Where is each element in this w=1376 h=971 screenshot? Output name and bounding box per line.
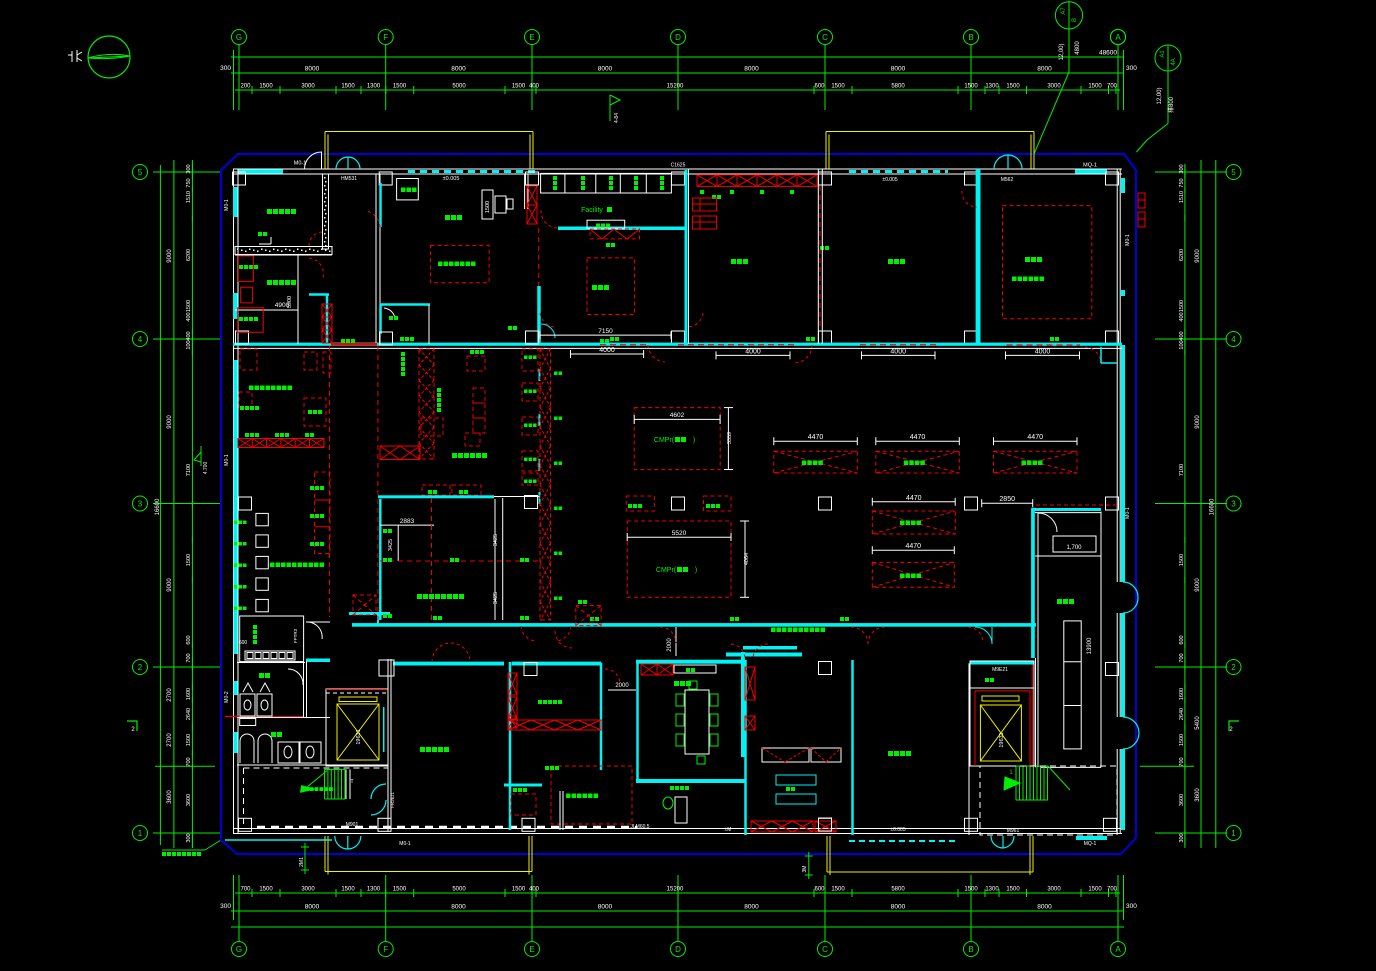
svg-text:8000: 8000 [305, 904, 320, 911]
svg-text:8000: 8000 [305, 66, 320, 73]
svg-text:4800: 4800 [1075, 41, 1081, 55]
svg-text:300: 300 [186, 164, 192, 173]
svg-text:600: 600 [814, 887, 825, 893]
svg-text:5520: 5520 [672, 530, 687, 537]
svg-text:B: B [1072, 18, 1078, 22]
svg-text:700: 700 [186, 653, 192, 662]
svg-text:2000: 2000 [667, 638, 673, 652]
svg-text:1300: 1300 [985, 84, 999, 90]
svg-text:D: D [675, 945, 681, 954]
svg-text:M0-1: M0-1 [1125, 507, 1131, 519]
svg-text:1600: 1600 [186, 688, 192, 700]
svg-text:3: 3 [138, 499, 143, 508]
svg-text:C1625: C1625 [671, 163, 686, 169]
svg-text:A: A [1115, 945, 1121, 954]
svg-text:4.700: 4.700 [203, 462, 209, 475]
svg-text:15200: 15200 [667, 84, 684, 90]
svg-text:3425: 3425 [493, 534, 499, 546]
svg-text:7150: 7150 [598, 328, 613, 335]
svg-text:5400: 5400 [1195, 716, 1201, 730]
svg-text:M961: M961 [1007, 828, 1020, 834]
svg-text:M0-1: M0-1 [399, 841, 411, 847]
svg-text:1500: 1500 [1006, 84, 1020, 90]
svg-text:4000: 4000 [745, 348, 761, 355]
svg-text:1500: 1500 [1088, 84, 1102, 90]
svg-text:T: T [350, 779, 353, 785]
svg-text:9000: 9000 [167, 415, 173, 429]
svg-text:4: 4 [1231, 335, 1236, 344]
svg-text:1500: 1500 [186, 554, 192, 566]
svg-text:F: F [383, 945, 388, 954]
svg-text:5000: 5000 [452, 887, 466, 893]
svg-text:1500: 1500 [341, 84, 355, 90]
svg-text:4470: 4470 [906, 543, 922, 550]
svg-text:1500: 1500 [964, 84, 978, 90]
svg-text:M0-1: M0-1 [294, 161, 307, 167]
svg-text:1510: 1510 [186, 191, 192, 203]
svg-text:100: 100 [1179, 340, 1185, 349]
svg-text:300: 300 [220, 65, 231, 72]
svg-text:2700: 2700 [167, 733, 173, 747]
svg-text:19631: 19631 [356, 729, 362, 744]
svg-text:1500: 1500 [512, 887, 526, 893]
svg-text:4470: 4470 [808, 434, 824, 441]
svg-text:3: 3 [1231, 499, 1236, 508]
svg-text:7100: 7100 [1179, 464, 1185, 476]
svg-text:8000: 8000 [598, 904, 613, 911]
svg-text:±M: ±M [725, 827, 732, 833]
svg-text:1500: 1500 [259, 84, 273, 90]
svg-text:±0.005: ±0.005 [890, 827, 905, 833]
svg-text:3425: 3425 [493, 592, 499, 604]
svg-text:3M: 3M [802, 866, 808, 873]
svg-text:FR26J1: FR26J1 [390, 792, 395, 808]
svg-text:M0-2: M0-2 [224, 691, 230, 703]
svg-text:1300: 1300 [367, 84, 381, 90]
svg-text:C: C [822, 945, 828, 954]
svg-text:5900: 5900 [287, 296, 293, 308]
svg-text:4000: 4000 [1035, 348, 1051, 355]
svg-text:G: G [236, 33, 242, 42]
svg-text:13900: 13900 [1087, 637, 1093, 654]
svg-text:3000: 3000 [1047, 887, 1061, 893]
svg-text:2: 2 [138, 663, 143, 672]
svg-text:3600: 3600 [1195, 788, 1201, 802]
svg-text:4064: 4064 [744, 553, 750, 565]
svg-text:1500: 1500 [831, 887, 845, 893]
svg-text:B: B [968, 33, 973, 42]
svg-text:1500: 1500 [964, 887, 978, 893]
svg-text:5: 5 [138, 168, 143, 177]
svg-text:48600: 48600 [1099, 50, 1117, 57]
svg-text:CMPr(: CMPr( [654, 437, 675, 444]
svg-text:1600: 1600 [1179, 688, 1185, 700]
svg-text:700: 700 [1179, 757, 1185, 766]
svg-text:): ) [695, 567, 697, 574]
svg-text:CMPr(: CMPr( [656, 567, 677, 574]
svg-text:1500: 1500 [341, 887, 355, 893]
svg-text:JLM60.5: JLM60.5 [630, 824, 649, 830]
svg-text:9000: 9000 [167, 249, 173, 263]
svg-text:9000: 9000 [1195, 578, 1201, 592]
svg-text:1500: 1500 [512, 84, 526, 90]
svg-text:B: B [968, 945, 973, 954]
svg-text:400: 400 [529, 84, 540, 90]
svg-text:G: G [236, 945, 242, 954]
svg-text:E: E [529, 945, 534, 954]
svg-text:5: 5 [1231, 168, 1236, 177]
svg-text:1500: 1500 [259, 887, 273, 893]
svg-text:12,00): 12,00) [1157, 87, 1163, 104]
svg-text:300: 300 [220, 903, 231, 910]
svg-text:D: D [675, 33, 681, 42]
svg-text:M9E21: M9E21 [992, 667, 1008, 673]
svg-text:300: 300 [1126, 65, 1137, 72]
svg-text:M0-1: M0-1 [1125, 234, 1131, 246]
svg-text:2M1: 2M1 [299, 857, 305, 867]
svg-text:8000: 8000 [1037, 66, 1052, 73]
svg-text:8000: 8000 [891, 904, 906, 911]
svg-text:3359: 3359 [727, 432, 733, 444]
svg-text:300: 300 [1179, 164, 1185, 173]
svg-text:750: 750 [186, 178, 192, 187]
svg-text:4470: 4470 [1027, 434, 1043, 441]
svg-text:15200: 15200 [667, 887, 684, 893]
svg-text:700: 700 [240, 887, 251, 893]
svg-text:4000: 4000 [890, 348, 906, 355]
svg-text:1500: 1500 [186, 300, 192, 312]
svg-text:2640: 2640 [186, 708, 192, 720]
svg-text:±0.005: ±0.005 [443, 176, 460, 182]
svg-text:600: 600 [186, 635, 192, 644]
svg-text:1500: 1500 [186, 734, 192, 746]
svg-text:5800: 5800 [891, 84, 905, 90]
svg-text:1500: 1500 [1179, 734, 1185, 746]
svg-text:M901: M901 [346, 822, 359, 828]
svg-text:1: 1 [1231, 829, 1236, 838]
svg-text:F: F [383, 33, 388, 42]
svg-text:200: 200 [240, 84, 251, 90]
svg-text:400: 400 [186, 312, 192, 321]
svg-text:8000: 8000 [598, 66, 613, 73]
svg-text:3000: 3000 [301, 84, 315, 90]
svg-text:1500: 1500 [393, 84, 407, 90]
svg-text:700: 700 [186, 757, 192, 766]
svg-text:600: 600 [239, 640, 248, 646]
svg-text:8000: 8000 [744, 66, 759, 73]
svg-text:A7: A7 [1061, 7, 1067, 15]
svg-text:1500: 1500 [1006, 887, 1020, 893]
svg-text:): ) [693, 437, 695, 444]
svg-text:400: 400 [1179, 312, 1185, 321]
svg-text:M0-1: M0-1 [224, 454, 230, 466]
svg-text:700: 700 [1179, 653, 1185, 662]
svg-text:1300: 1300 [985, 887, 999, 893]
svg-text:3000: 3000 [301, 887, 315, 893]
svg-text:19631: 19631 [999, 732, 1005, 747]
svg-text:2: 2 [1231, 663, 1236, 672]
svg-text:700: 700 [1107, 887, 1118, 893]
svg-text:4A: 4A [1171, 58, 1177, 65]
svg-text:600: 600 [814, 84, 825, 90]
svg-text:±0.005: ±0.005 [882, 177, 897, 183]
svg-text:6200: 6200 [1179, 249, 1185, 261]
svg-text:HM531: HM531 [341, 176, 357, 182]
svg-text:6200: 6200 [186, 249, 192, 261]
svg-text:400: 400 [186, 331, 192, 340]
svg-text:2850: 2850 [999, 496, 1015, 503]
svg-text:3000: 3000 [1047, 84, 1061, 90]
svg-text:8000: 8000 [451, 66, 466, 73]
svg-text:9000: 9000 [1195, 249, 1201, 263]
svg-text:排800: 排800 [1167, 96, 1175, 113]
svg-text:2700: 2700 [167, 688, 173, 702]
svg-text:4-84: 4-84 [614, 113, 620, 123]
svg-text:3600: 3600 [1179, 794, 1185, 806]
svg-text:100: 100 [186, 340, 192, 349]
svg-text:5800: 5800 [891, 887, 905, 893]
svg-text:1510: 1510 [1179, 191, 1185, 203]
svg-text:2883: 2883 [400, 518, 415, 525]
svg-text:Facility: Facility [581, 207, 603, 214]
svg-text:1500: 1500 [1179, 300, 1185, 312]
svg-text:8000: 8000 [891, 66, 906, 73]
svg-text:300: 300 [1179, 833, 1185, 842]
svg-text:FPTR3: FPTR3 [293, 628, 298, 643]
svg-text:1500: 1500 [1088, 887, 1102, 893]
svg-text:600: 600 [1179, 635, 1185, 644]
svg-text:3600: 3600 [186, 794, 192, 806]
svg-text:M0-1: M0-1 [224, 199, 230, 211]
svg-text:16600: 16600 [155, 498, 161, 515]
svg-text:1500: 1500 [1179, 554, 1185, 566]
svg-text:16600: 16600 [1210, 498, 1216, 515]
svg-text:7100: 7100 [186, 464, 192, 476]
svg-text:5000: 5000 [452, 84, 466, 90]
svg-text:8000: 8000 [744, 904, 759, 911]
svg-text:12,00): 12,00) [1059, 43, 1065, 60]
svg-text:1500: 1500 [393, 887, 407, 893]
svg-text:A1: A1 [1160, 50, 1166, 58]
svg-text:1500: 1500 [485, 201, 491, 213]
svg-text:2640: 2640 [1179, 708, 1185, 720]
svg-text:4000: 4000 [599, 347, 615, 354]
svg-text:750: 750 [1179, 178, 1185, 187]
svg-text:300: 300 [186, 833, 192, 842]
svg-text:2000: 2000 [615, 683, 629, 689]
svg-text:E: E [529, 33, 534, 42]
svg-text:MQ-1: MQ-1 [1084, 841, 1097, 847]
svg-text:4470: 4470 [906, 495, 922, 502]
svg-text:1300: 1300 [367, 887, 381, 893]
svg-text:3425: 3425 [388, 539, 394, 551]
svg-text:A: A [1115, 33, 1121, 42]
svg-text:4470: 4470 [910, 434, 926, 441]
svg-text:9000: 9000 [167, 578, 173, 592]
svg-text:8000: 8000 [1037, 904, 1052, 911]
svg-text:C: C [822, 33, 828, 42]
svg-text:M562: M562 [1001, 177, 1014, 183]
svg-text:1,700: 1,700 [1066, 545, 1082, 551]
svg-text:400: 400 [1179, 331, 1185, 340]
svg-text:4602: 4602 [670, 412, 685, 419]
svg-text:1: 1 [138, 829, 143, 838]
svg-text:3600: 3600 [167, 790, 173, 804]
svg-text:300: 300 [1126, 903, 1137, 910]
svg-text:1500: 1500 [831, 84, 845, 90]
svg-text:400: 400 [529, 887, 540, 893]
svg-text:4: 4 [138, 335, 143, 344]
svg-text:9000: 9000 [1195, 415, 1201, 429]
svg-text:700: 700 [1107, 84, 1118, 90]
svg-text:MQ-1: MQ-1 [1083, 163, 1097, 169]
svg-text:8000: 8000 [451, 904, 466, 911]
